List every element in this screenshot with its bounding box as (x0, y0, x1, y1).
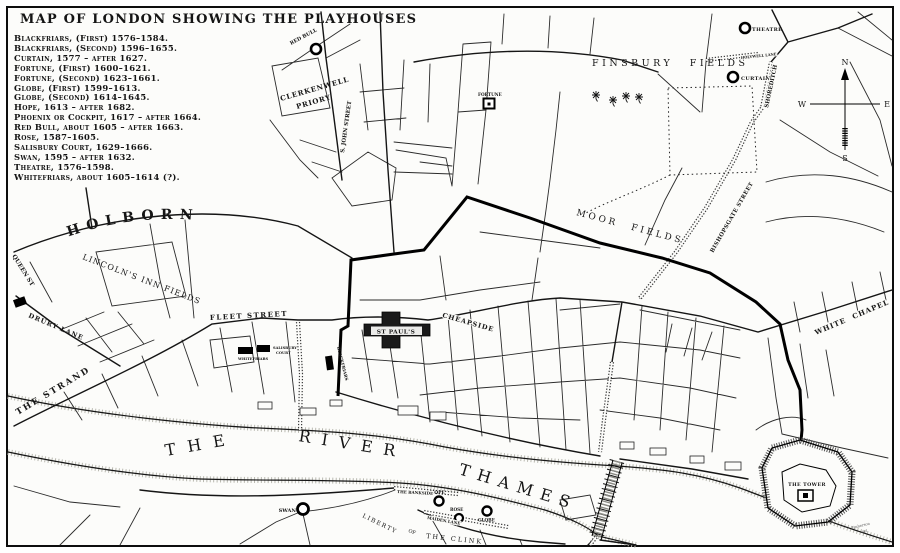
st-pauls-label: ST PAUL'S (377, 330, 416, 336)
the-tower-label: THE TOWER (788, 482, 826, 488)
compass-w-label: W (798, 100, 807, 109)
fortune-marker (484, 99, 495, 109)
globe-marker (483, 507, 492, 516)
whitefriars-label: WHITEFRIARS (237, 357, 269, 361)
globe-label: GLOBE (478, 518, 495, 523)
legend-item: Whitefriars, about 1605–1614 (?). (14, 173, 286, 183)
compass-e-label: E (884, 100, 890, 109)
compass-n-label: N (842, 58, 849, 67)
tower-of-london: THE TOWER (762, 440, 852, 526)
legend-panel: MAP OF LONDON SHOWING THE PLAYHOUSES Bla… (14, 10, 286, 183)
rose-label: ROSE (450, 507, 463, 512)
map-of-london-playhouses: THE TOWER ST PAUL'S THEATRE CURTAIN (0, 0, 900, 553)
salisbury-court-marker (257, 345, 270, 352)
salisbury-court-label-1: SALISBURY (273, 346, 297, 350)
theatre-marker (740, 23, 750, 33)
compass-s-label: S (842, 154, 847, 163)
finsbury-fields-label: FINSBURY FIELDS (592, 58, 749, 69)
map-title: MAP OF LONDON SHOWING THE PLAYHOUSES (20, 12, 286, 27)
hope-marker (435, 497, 444, 506)
swan-label: SWAN (279, 508, 297, 514)
curtain-label: CURTAIN (741, 76, 770, 82)
whitefriars-marker (238, 347, 253, 354)
salisbury-court-label-2: COURT (276, 351, 291, 355)
theatre-label: THEATRE (752, 27, 782, 33)
swan-marker (298, 504, 309, 515)
curtain-marker (728, 72, 738, 82)
fortune-label: FORTUNE (478, 92, 502, 97)
red-bull-marker (311, 44, 321, 54)
